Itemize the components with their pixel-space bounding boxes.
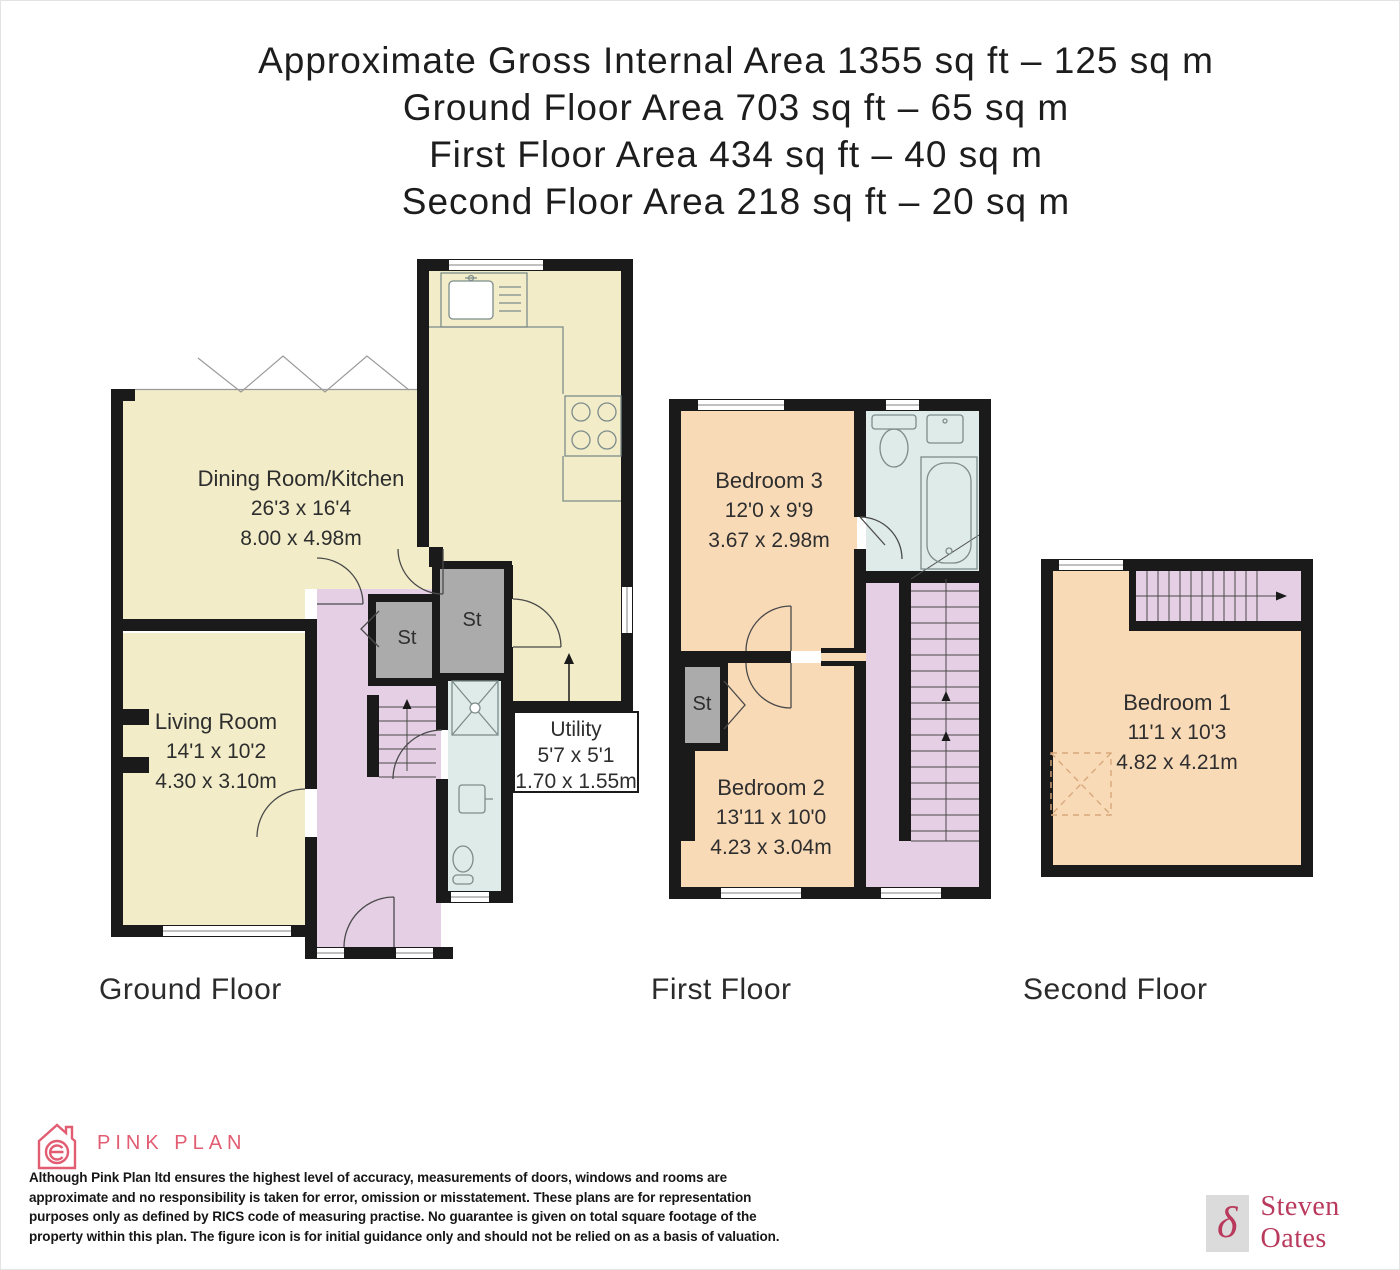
room-label-store-1: St — [389, 627, 425, 650]
room-label-dining: Dining Room/Kitchen 26'3 x 16'4 8.00 x 4… — [171, 464, 431, 554]
utility-callout: Utility 5'7 x 5'1 1.70 x 1.55m — [513, 711, 639, 793]
pink-plan-brand: PINK PLAN — [97, 1132, 246, 1155]
title-line-second: Second Floor Area 218 sq ft – 20 sq m — [71, 178, 1400, 225]
room-label-living: Living Room 14'1 x 10'2 4.30 x 3.10m — [126, 707, 306, 797]
ground-floor-plan: Dining Room/Kitchen 26'3 x 16'4 8.00 x 4… — [111, 259, 641, 961]
pink-plan-logo — [31, 1119, 83, 1171]
title-line-total: Approximate Gross Internal Area 1355 sq … — [71, 37, 1400, 84]
title-line-ground: Ground Floor Area 703 sq ft – 65 sq m — [71, 84, 1400, 131]
title-block: Approximate Gross Internal Area 1355 sq … — [71, 37, 1400, 225]
floorplan-page: Approximate Gross Internal Area 1355 sq … — [0, 0, 1400, 1270]
agent-logo-box: δ — [1206, 1195, 1249, 1252]
room-label-bedroom2: Bedroom 2 13'11 x 10'0 4.23 x 3.04m — [683, 773, 859, 863]
room-label-store-2: St — [454, 609, 490, 632]
first-floor-plan: Bedroom 3 12'0 x 9'9 3.67 x 2.98m Bedroo… — [669, 399, 991, 911]
floor-label-ground: Ground Floor — [99, 973, 282, 1007]
room-label-bedroom3: Bedroom 3 12'0 x 9'9 3.67 x 2.98m — [681, 466, 857, 556]
delta-glyph-icon: δ — [1217, 1201, 1237, 1245]
agent-logo: δ Steven Oates — [1206, 1191, 1399, 1255]
floor-label-first: First Floor — [651, 973, 792, 1007]
agent-name: Steven Oates — [1261, 1191, 1399, 1255]
floor-label-second: Second Floor — [1023, 973, 1207, 1007]
second-floor-plan: Bedroom 1 11'1 x 10'3 4.82 x 4.21m — [1041, 559, 1313, 877]
second-windows — [1059, 560, 1123, 570]
room-label-bedroom1: Bedroom 1 11'1 x 10'3 4.82 x 4.21m — [1057, 688, 1297, 778]
pink-plan-house-icon — [31, 1119, 83, 1173]
room-label-store-first: St — [684, 693, 720, 716]
disclaimer-text: Although Pink Plan ltd ensures the highe… — [29, 1168, 789, 1246]
zigzag-break-line — [135, 356, 417, 392]
title-line-first: First Floor Area 434 sq ft – 40 sq m — [71, 131, 1400, 178]
